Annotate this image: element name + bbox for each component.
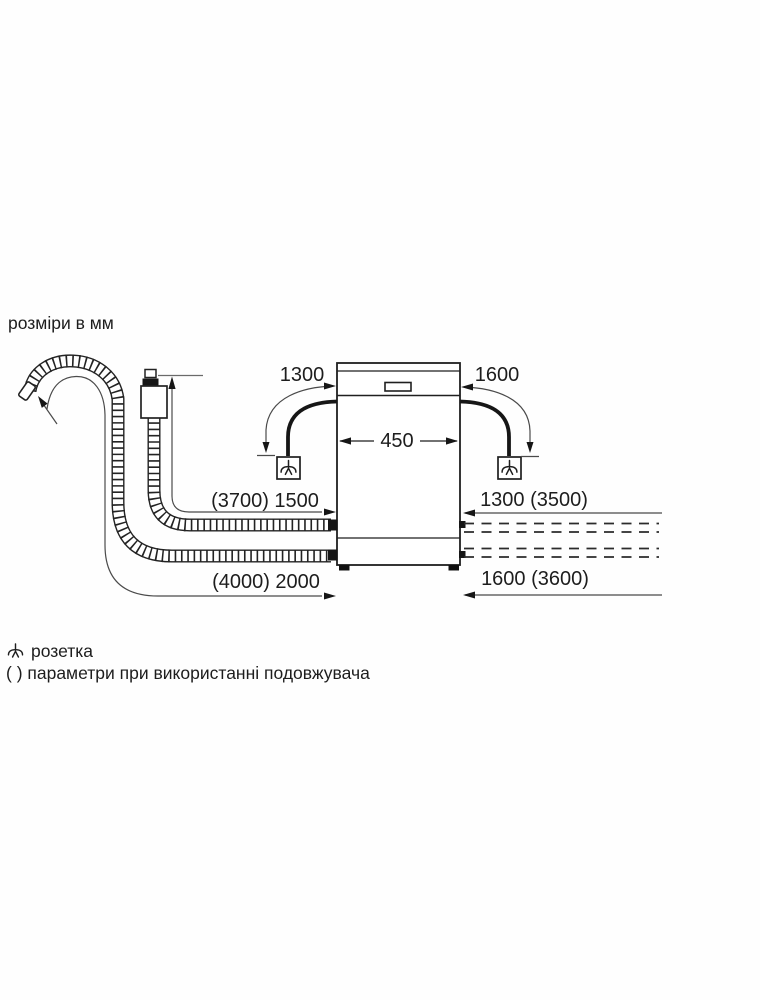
power-cable-left — [288, 402, 337, 457]
socket-box-right — [498, 457, 521, 479]
drain-hose-end-cap — [18, 381, 36, 401]
dishwasher-foot-left — [339, 565, 350, 571]
legend-socket-row: розетка — [6, 641, 93, 661]
label-cable-left: 1300 — [280, 365, 325, 385]
label-supply-hose: (3700) 1500 — [211, 491, 319, 511]
dishwasher-front — [328, 363, 466, 571]
legend-parentheses-note: ( ) параметри при використанні подовжува… — [6, 663, 370, 683]
arrowhead — [263, 442, 270, 453]
dimension-right-lower — [463, 592, 662, 599]
page: розміри в мм — [0, 0, 760, 1000]
arrowhead — [324, 383, 336, 390]
arrowhead — [38, 396, 48, 408]
hose-connector-left-lower — [328, 550, 338, 561]
label-right-lower: 1600 (3600) — [481, 569, 589, 589]
installation-diagram — [0, 0, 760, 1000]
dimension-drain-hose — [38, 376, 336, 599]
dimension-cable-left — [257, 383, 336, 456]
hose-connector-right-upper — [459, 521, 466, 528]
arrowhead — [168, 377, 175, 390]
label-drain-hose: (4000) 2000 — [212, 572, 320, 592]
arrowhead — [463, 592, 475, 599]
arrowhead — [527, 442, 534, 453]
socket-icon — [6, 642, 25, 661]
socket-box-left — [277, 457, 300, 479]
dishwasher-handle — [385, 383, 411, 392]
legend-socket-label: розетка — [31, 641, 93, 661]
arrowhead — [463, 510, 475, 517]
arrowhead — [324, 593, 336, 600]
arrowhead — [324, 509, 336, 516]
dashed-hose-lines — [464, 524, 659, 558]
label-right-upper: 1300 (3500) — [480, 490, 588, 510]
hose-connector-left-upper — [328, 520, 338, 531]
power-cable-right — [460, 402, 509, 457]
label-cable-right: 1600 — [475, 365, 520, 385]
dimension-cable-right — [461, 384, 539, 457]
aquastop-valve — [141, 370, 167, 419]
arrowhead — [461, 384, 473, 391]
dishwasher-foot-right — [449, 565, 460, 571]
label-width: 450 — [380, 431, 413, 451]
